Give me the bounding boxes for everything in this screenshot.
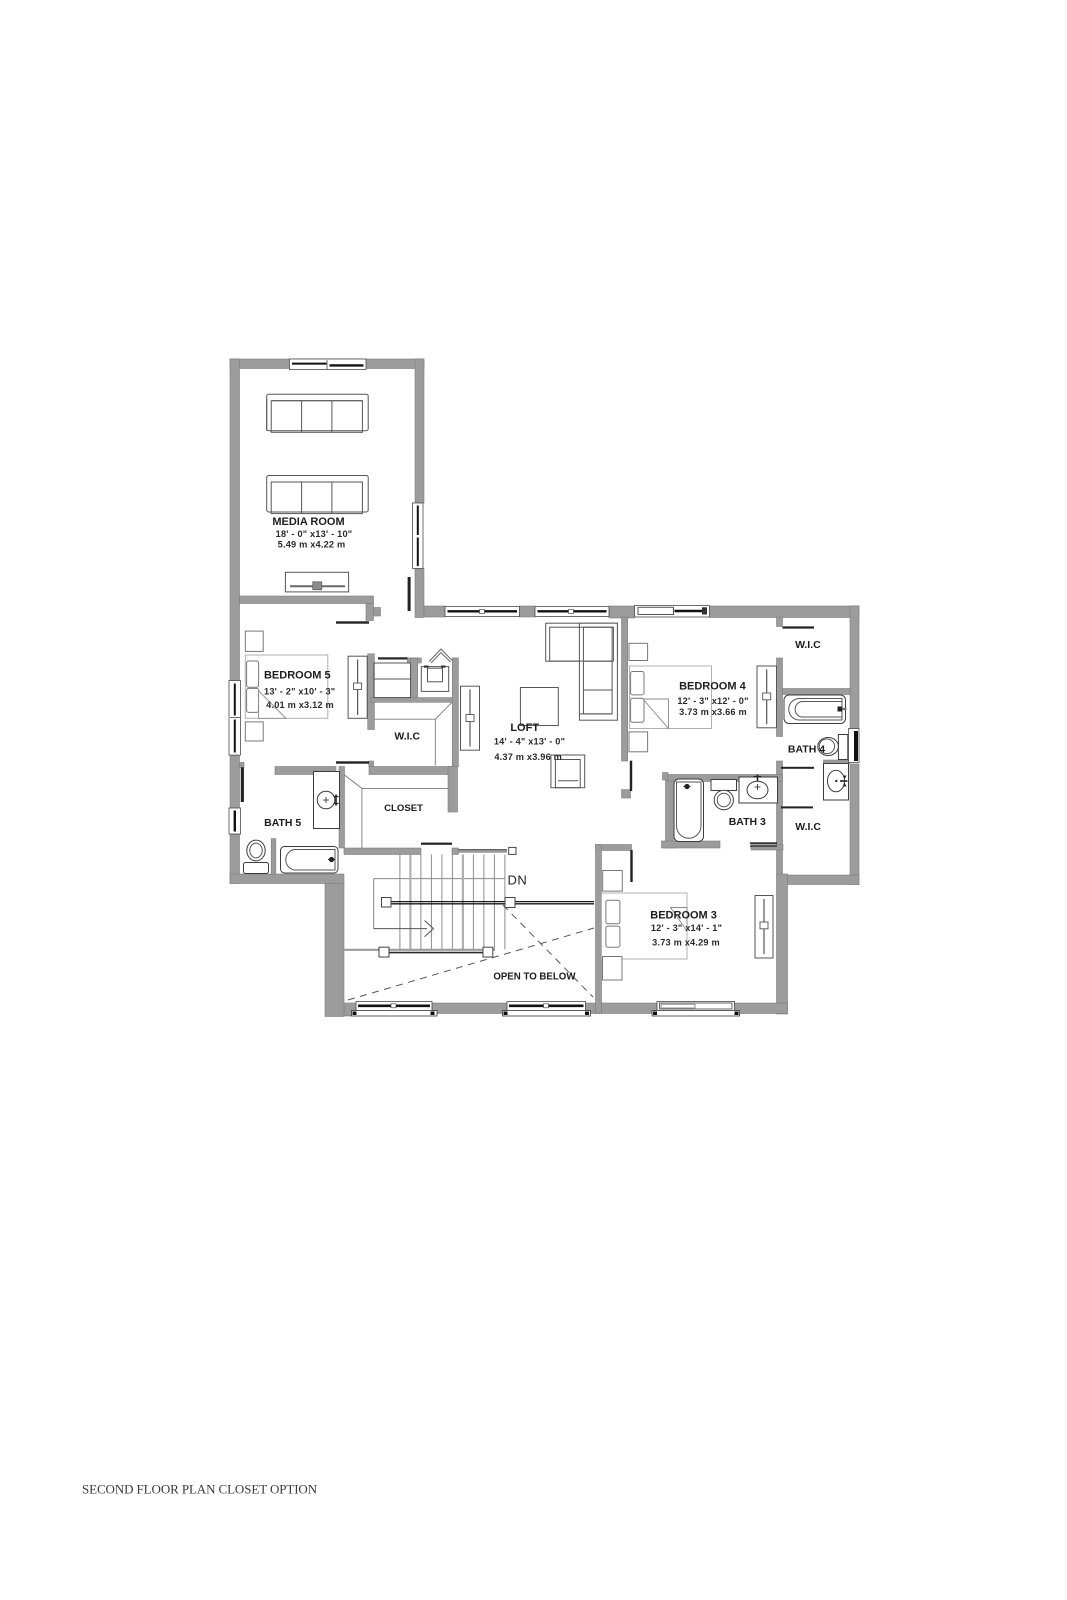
svg-text:W.I.C: W.I.C — [394, 731, 420, 743]
svg-text:BEDROOM 5: BEDROOM 5 — [264, 670, 331, 682]
svg-text:5.49 m x4.22 m: 5.49 m x4.22 m — [278, 540, 346, 550]
svg-text:LOFT: LOFT — [510, 722, 539, 734]
svg-text:BATH 4: BATH 4 — [788, 744, 825, 756]
svg-text:CLOSET: CLOSET — [384, 803, 423, 814]
svg-text:4.01 m x3.12 m: 4.01 m x3.12 m — [266, 700, 334, 710]
svg-text:13' - 2" x10' - 3": 13' - 2" x10' - 3" — [264, 687, 335, 697]
svg-text:4.37 m x3.96 m: 4.37 m x3.96 m — [494, 752, 562, 762]
svg-text:W.I.C: W.I.C — [795, 821, 821, 833]
svg-text:BATH 3: BATH 3 — [729, 816, 766, 828]
svg-text:SECOND FLOOR PLAN CLOSET OPTIO: SECOND FLOOR PLAN CLOSET OPTION — [82, 1482, 318, 1497]
svg-text:12' - 3" x14' - 1": 12' - 3" x14' - 1" — [651, 923, 722, 933]
svg-text:BATH 5: BATH 5 — [264, 817, 301, 829]
svg-text:18' - 0" x13' - 10": 18' - 0" x13' - 10" — [276, 529, 353, 539]
svg-text:DN: DN — [508, 873, 528, 888]
svg-text:BEDROOM 3: BEDROOM 3 — [650, 910, 717, 922]
svg-text:W.I.C: W.I.C — [795, 639, 821, 651]
svg-text:MEDIA ROOM: MEDIA ROOM — [272, 516, 344, 528]
svg-text:OPEN TO BELOW: OPEN TO BELOW — [493, 972, 576, 983]
svg-text:BEDROOM 4: BEDROOM 4 — [679, 681, 747, 693]
svg-text:3.73 m x3.66 m: 3.73 m x3.66 m — [679, 707, 747, 717]
svg-text:3.73 m x4.29 m: 3.73 m x4.29 m — [652, 938, 720, 948]
svg-text:14' - 4" x13' - 0": 14' - 4" x13' - 0" — [494, 737, 565, 747]
svg-text:12' - 3" x12' - 0": 12' - 3" x12' - 0" — [677, 696, 748, 706]
